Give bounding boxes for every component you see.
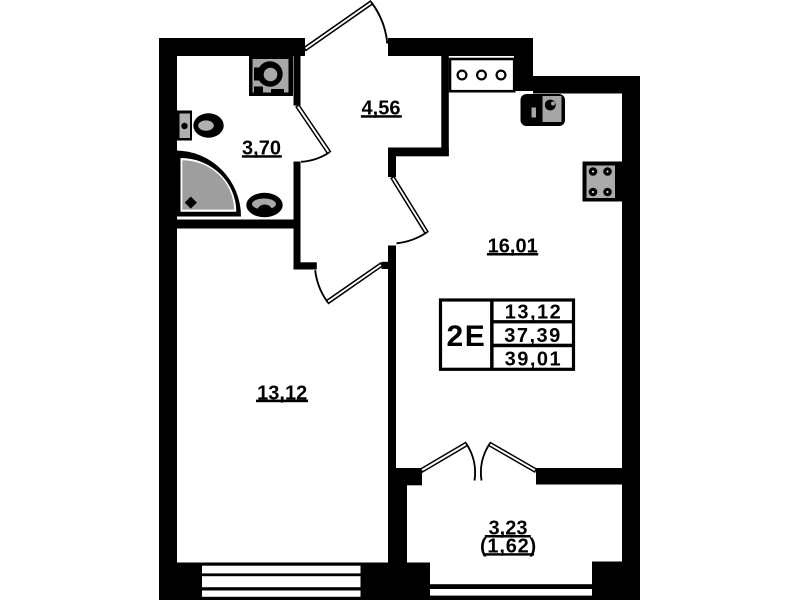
svg-text:2Е: 2Е bbox=[447, 320, 487, 353]
svg-text:37,39: 37,39 bbox=[504, 325, 562, 347]
svg-text:13,12: 13,12 bbox=[505, 302, 563, 324]
svg-text:39,01: 39,01 bbox=[505, 349, 563, 371]
